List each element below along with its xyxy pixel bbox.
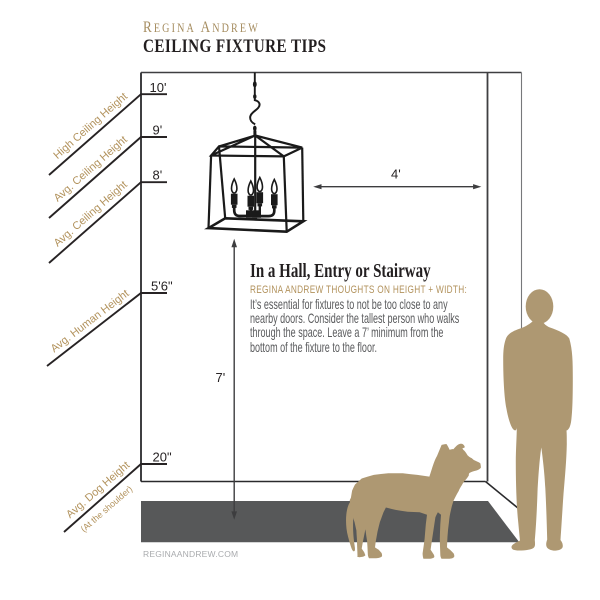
svg-text:5'6": 5'6"	[151, 279, 173, 294]
svg-text:20": 20"	[153, 450, 172, 465]
svg-text:9': 9'	[153, 123, 163, 138]
svg-text:7': 7'	[216, 370, 226, 385]
svg-text:8': 8'	[153, 168, 163, 183]
svg-text:10': 10'	[150, 80, 167, 95]
svg-text:4': 4'	[391, 167, 401, 182]
svg-text:Avg. Human Height: Avg. Human Height	[49, 288, 132, 355]
